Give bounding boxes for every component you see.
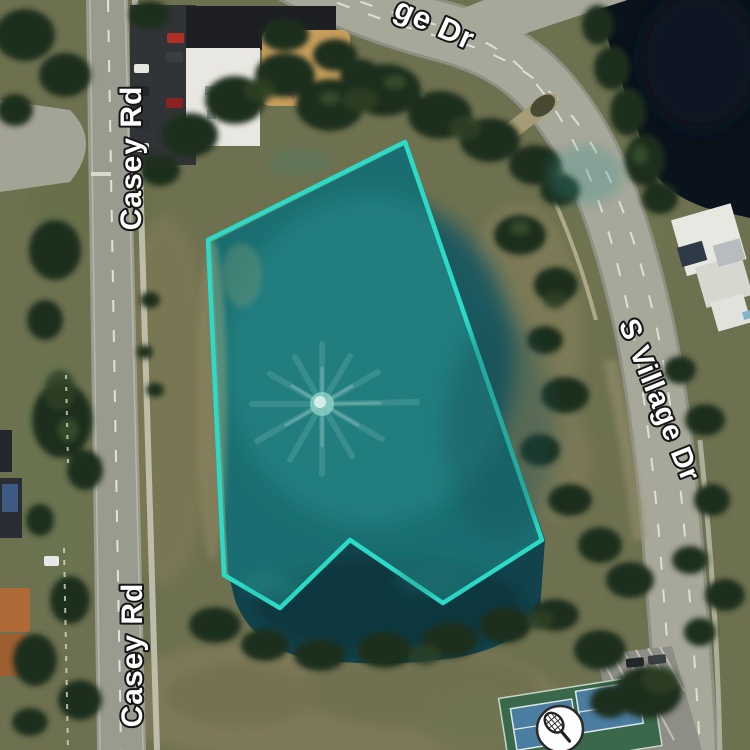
road-label-casey-lower: Casey Rd — [116, 583, 149, 728]
satellite-map[interactable]: ge Dr Casey Rd Casey Rd S Village Dr — [0, 0, 750, 750]
road-label-casey-upper: Casey Rd — [115, 86, 148, 231]
casey-stop-bar — [91, 172, 111, 176]
tennis-poi-icon[interactable] — [537, 706, 583, 750]
